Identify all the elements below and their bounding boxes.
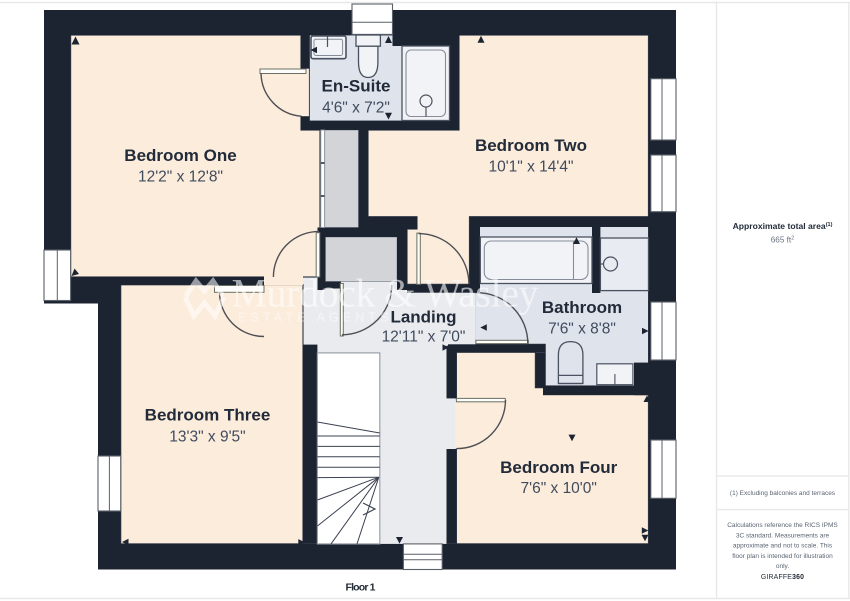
svg-text:10'1" x 14'4": 10'1" x 14'4" (488, 159, 573, 176)
svg-text:GIRAFFE360: GIRAFFE360 (761, 574, 804, 581)
svg-text:ESTATE AGENTS: ESTATE AGENTS (238, 311, 395, 325)
svg-text:Bedroom Four: Bedroom Four (500, 458, 617, 477)
svg-text:Bedroom Three: Bedroom Three (145, 406, 271, 425)
svg-text:665 ft2: 665 ft2 (771, 236, 795, 245)
svg-text:3C standard. Measurements are: 3C standard. Measurements are (736, 532, 830, 539)
svg-text:7'6" x 8'8": 7'6" x 8'8" (548, 321, 616, 338)
svg-text:4'6" x 7'2": 4'6" x 7'2" (322, 100, 390, 117)
svg-text:Murdock & Wasley: Murdock & Wasley (232, 271, 539, 316)
svg-text:13'3" x 9'5": 13'3" x 9'5" (169, 429, 245, 446)
svg-text:(1) Excluding balconies and te: (1) Excluding balconies and terraces (730, 490, 836, 497)
svg-text:approximate and not to scale.: approximate and not to scale. This (733, 543, 833, 550)
svg-text:Bathroom: Bathroom (542, 298, 622, 317)
svg-text:Bedroom One: Bedroom One (124, 146, 236, 165)
svg-text:7'6" x 10'0": 7'6" x 10'0" (521, 480, 597, 497)
svg-text:Calculations reference the RIC: Calculations reference the RICS IPMS (727, 522, 838, 529)
svg-text:12'2" x 12'8": 12'2" x 12'8" (138, 169, 223, 186)
svg-text:En-Suite: En-Suite (322, 77, 391, 96)
svg-text:Approximate total area(1): Approximate total area(1) (733, 221, 833, 231)
svg-text:only.: only. (776, 563, 789, 570)
svg-text:12'11" x 7'0": 12'11" x 7'0" (382, 329, 466, 346)
svg-text:floor plan is intended for ill: floor plan is intended for illustration (732, 553, 833, 560)
svg-text:Bedroom Two: Bedroom Two (475, 136, 587, 155)
svg-text:Floor 1: Floor 1 (346, 582, 376, 594)
